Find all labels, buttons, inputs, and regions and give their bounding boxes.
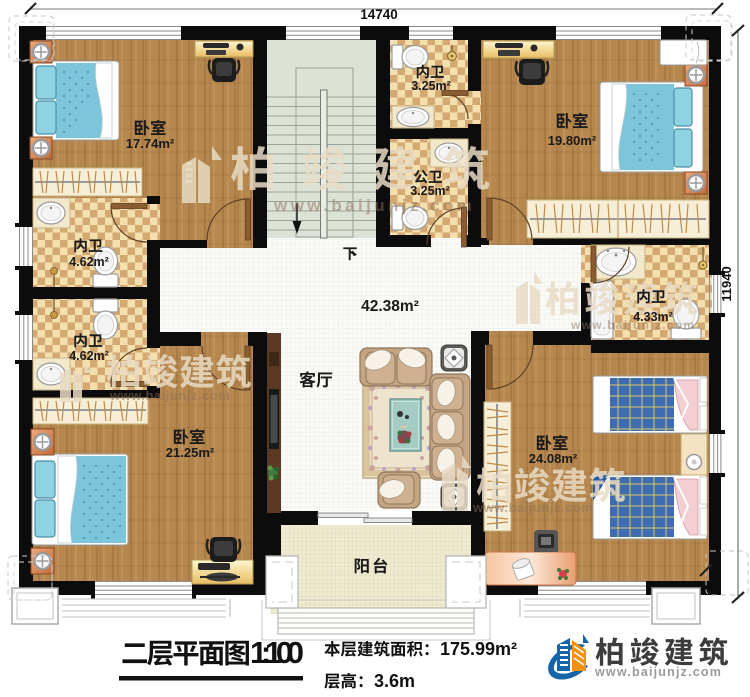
svg-text:3.25m²: 3.25m² xyxy=(411,79,451,93)
svg-text:4.62m²: 4.62m² xyxy=(69,255,109,269)
svg-text:21.25m²: 21.25m² xyxy=(166,445,215,460)
svg-text:11940: 11940 xyxy=(719,266,734,301)
svg-text:www.baijunjz.com: www.baijunjz.com xyxy=(109,388,230,403)
svg-text:3.6m: 3.6m xyxy=(374,671,415,691)
svg-text:19.80m²: 19.80m² xyxy=(548,133,597,148)
svg-text:www.baijunjz.com: www.baijunjz.com xyxy=(273,196,475,215)
svg-text:42.38m²: 42.38m² xyxy=(361,298,419,315)
svg-text:24.08m²: 24.08m² xyxy=(529,451,578,466)
svg-text:4.62m²: 4.62m² xyxy=(69,349,109,363)
svg-text:14740: 14740 xyxy=(360,7,398,22)
svg-text:175.99m²: 175.99m² xyxy=(440,639,517,659)
svg-text:4.33m²: 4.33m² xyxy=(633,310,673,324)
svg-text:17.74m²: 17.74m² xyxy=(126,136,175,151)
svg-text:1:100: 1:100 xyxy=(250,635,304,670)
svg-text:3.25m²: 3.25m² xyxy=(410,184,450,198)
svg-text:www.baijunjz.com: www.baijunjz.com xyxy=(594,665,722,679)
svg-text:www.baijunjz.com: www.baijunjz.com xyxy=(472,500,593,515)
